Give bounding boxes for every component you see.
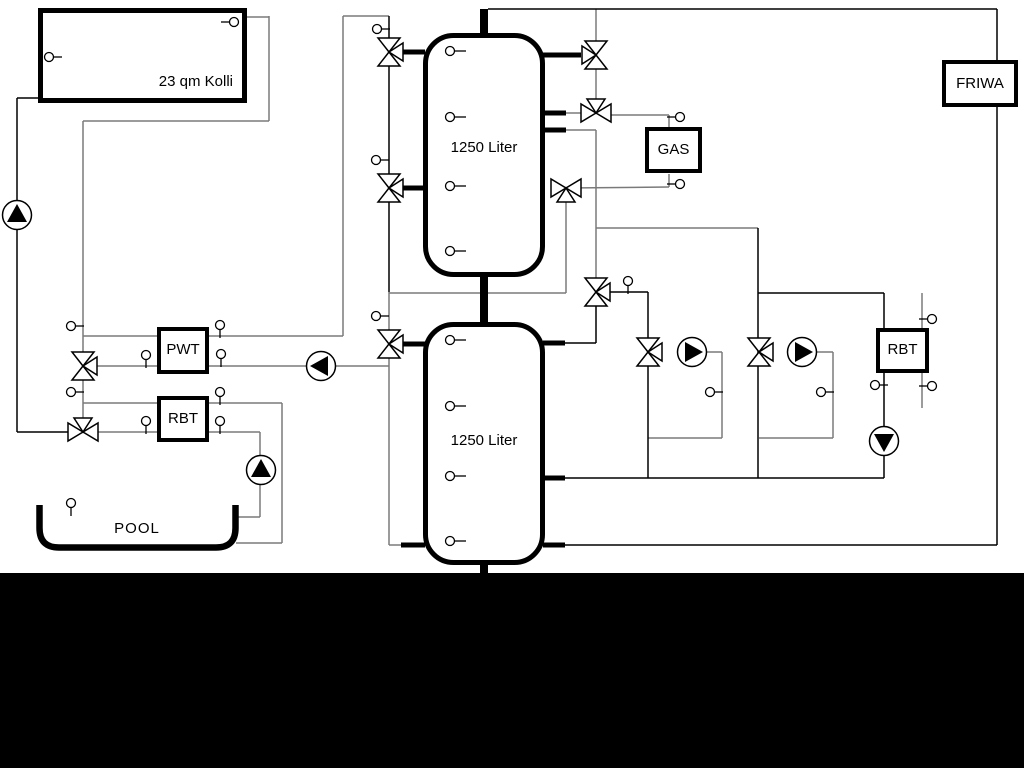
temperature-sensor-icon: [373, 25, 382, 34]
pwt-label: PWT: [157, 342, 209, 358]
temperature-sensor-icon: [446, 402, 455, 411]
temperature-sensor-icon: [676, 180, 685, 189]
temperature-sensor-icon: [446, 113, 455, 122]
temperature-sensor-icon: [230, 18, 239, 27]
temperature-sensor-icon: [624, 277, 633, 286]
temperature-sensor-icon: [372, 156, 381, 165]
temperature-sensor-icon: [928, 315, 937, 324]
temperature-sensor-icon: [217, 350, 226, 359]
rbt-right-label: RBT: [876, 342, 929, 358]
buffer-tank-top-label: 1250 Liter: [423, 140, 545, 156]
temperature-sensor-icon: [676, 113, 685, 122]
solar-collector-label: 23 qm Kolli: [143, 74, 233, 90]
gas-boiler-label: GAS: [645, 142, 702, 158]
rbt-left-label: RBT: [157, 411, 209, 427]
temperature-sensor-icon: [216, 321, 225, 330]
temperature-sensor-icon: [67, 499, 76, 508]
temperature-sensor-icon: [446, 47, 455, 56]
temperature-sensor-icon: [446, 336, 455, 345]
temperature-sensor-icon: [142, 351, 151, 360]
bottom-black-band: [0, 573, 1024, 768]
temperature-sensor-icon: [142, 417, 151, 426]
temperature-sensor-icon: [446, 537, 455, 546]
temperature-sensor-icon: [928, 382, 937, 391]
hydraulic-schematic: 23 qm Kolli 1250 Liter 1250 Liter GAS FR…: [0, 0, 1024, 768]
temperature-sensor-icon: [446, 472, 455, 481]
buffer-tank-bottom-label: 1250 Liter: [423, 433, 545, 449]
temperature-sensor-icon: [871, 381, 880, 390]
pool-label: POOL: [57, 521, 217, 537]
temperature-sensor-icon: [372, 312, 381, 321]
temperature-sensor-icon: [817, 388, 826, 397]
temperature-sensor-icon: [216, 388, 225, 397]
temperature-sensor-icon: [446, 182, 455, 191]
temperature-sensor-icon: [706, 388, 715, 397]
temperature-sensor-icon: [67, 388, 76, 397]
temperature-sensor-icon: [446, 247, 455, 256]
temperature-sensor-icon: [216, 417, 225, 426]
fresh-water-station-label: FRIWA: [942, 76, 1018, 92]
temperature-sensor-icon: [67, 322, 76, 331]
temperature-sensor-icon: [45, 53, 54, 62]
